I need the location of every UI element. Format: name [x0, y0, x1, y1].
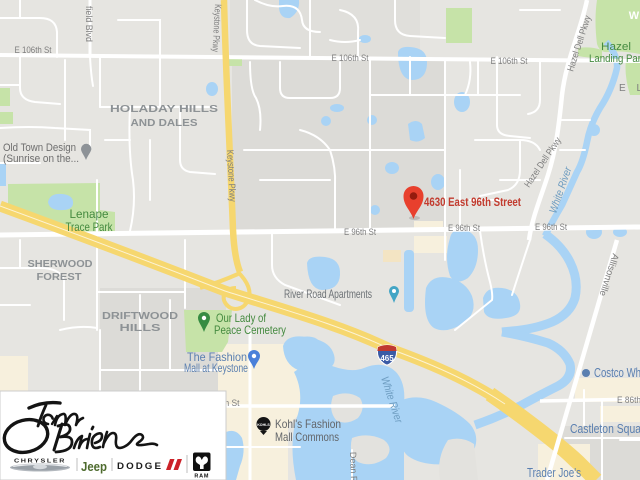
svg-text:4630 East 96th Street: 4630 East 96th Street	[424, 195, 521, 209]
svg-text:E 96th St: E 96th St	[448, 223, 480, 234]
svg-text:465: 465	[380, 354, 394, 363]
svg-text:DODGE: DODGE	[117, 461, 163, 472]
svg-text:h St: h St	[225, 398, 240, 409]
svg-text:E 106th St: E 106th St	[15, 45, 52, 56]
svg-text:Dean Rd: Dean Rd	[348, 452, 359, 480]
svg-text:E 106th St: E 106th St	[491, 56, 528, 67]
svg-text:E 106th St: E 106th St	[332, 53, 369, 64]
svg-text:Mall Commons: Mall Commons	[275, 430, 339, 444]
svg-text:River Road Apartments: River Road Apartments	[284, 287, 372, 301]
svg-text:Kohl's Fashion: Kohl's Fashion	[275, 417, 341, 431]
svg-text:Trace Park: Trace Park	[66, 220, 114, 234]
svg-text:Trader Joe's: Trader Joe's	[527, 466, 581, 480]
svg-text:HOLADAY HILLS: HOLADAY HILLS	[110, 103, 218, 115]
svg-text:Costco Wh: Costco Wh	[594, 366, 640, 380]
svg-text:KOHLS: KOHLS	[257, 423, 270, 427]
svg-text:(Sunrise on the...: (Sunrise on the...	[3, 153, 79, 165]
svg-text:Hazel: Hazel	[601, 41, 631, 53]
svg-text:Landing Par: Landing Par	[589, 53, 640, 65]
svg-text:RAM: RAM	[194, 474, 209, 480]
svg-text:E 86th: E 86th	[617, 395, 640, 406]
svg-text:Castleton Squa: Castleton Squa	[570, 422, 640, 436]
svg-text:Jeep: Jeep	[81, 459, 107, 474]
svg-text:E 96th St: E 96th St	[344, 227, 376, 238]
svg-text:Lenape: Lenape	[70, 207, 109, 221]
svg-text:E L: E L	[619, 83, 640, 94]
svg-text:AND DALES: AND DALES	[131, 117, 198, 129]
svg-text:DRIFTWOOD: DRIFTWOOD	[102, 310, 178, 322]
svg-text:Mall at Keystone: Mall at Keystone	[184, 361, 248, 375]
svg-text:FOREST: FOREST	[37, 271, 83, 283]
svg-text:E 96th St: E 96th St	[535, 222, 567, 233]
svg-text:Peace Cemetery: Peace Cemetery	[214, 323, 286, 337]
svg-text:field Blvd: field Blvd	[83, 6, 94, 42]
svg-text:W: W	[629, 10, 640, 22]
svg-text:SHERWOOD: SHERWOOD	[28, 258, 93, 270]
svg-text:HILLS: HILLS	[120, 322, 161, 334]
